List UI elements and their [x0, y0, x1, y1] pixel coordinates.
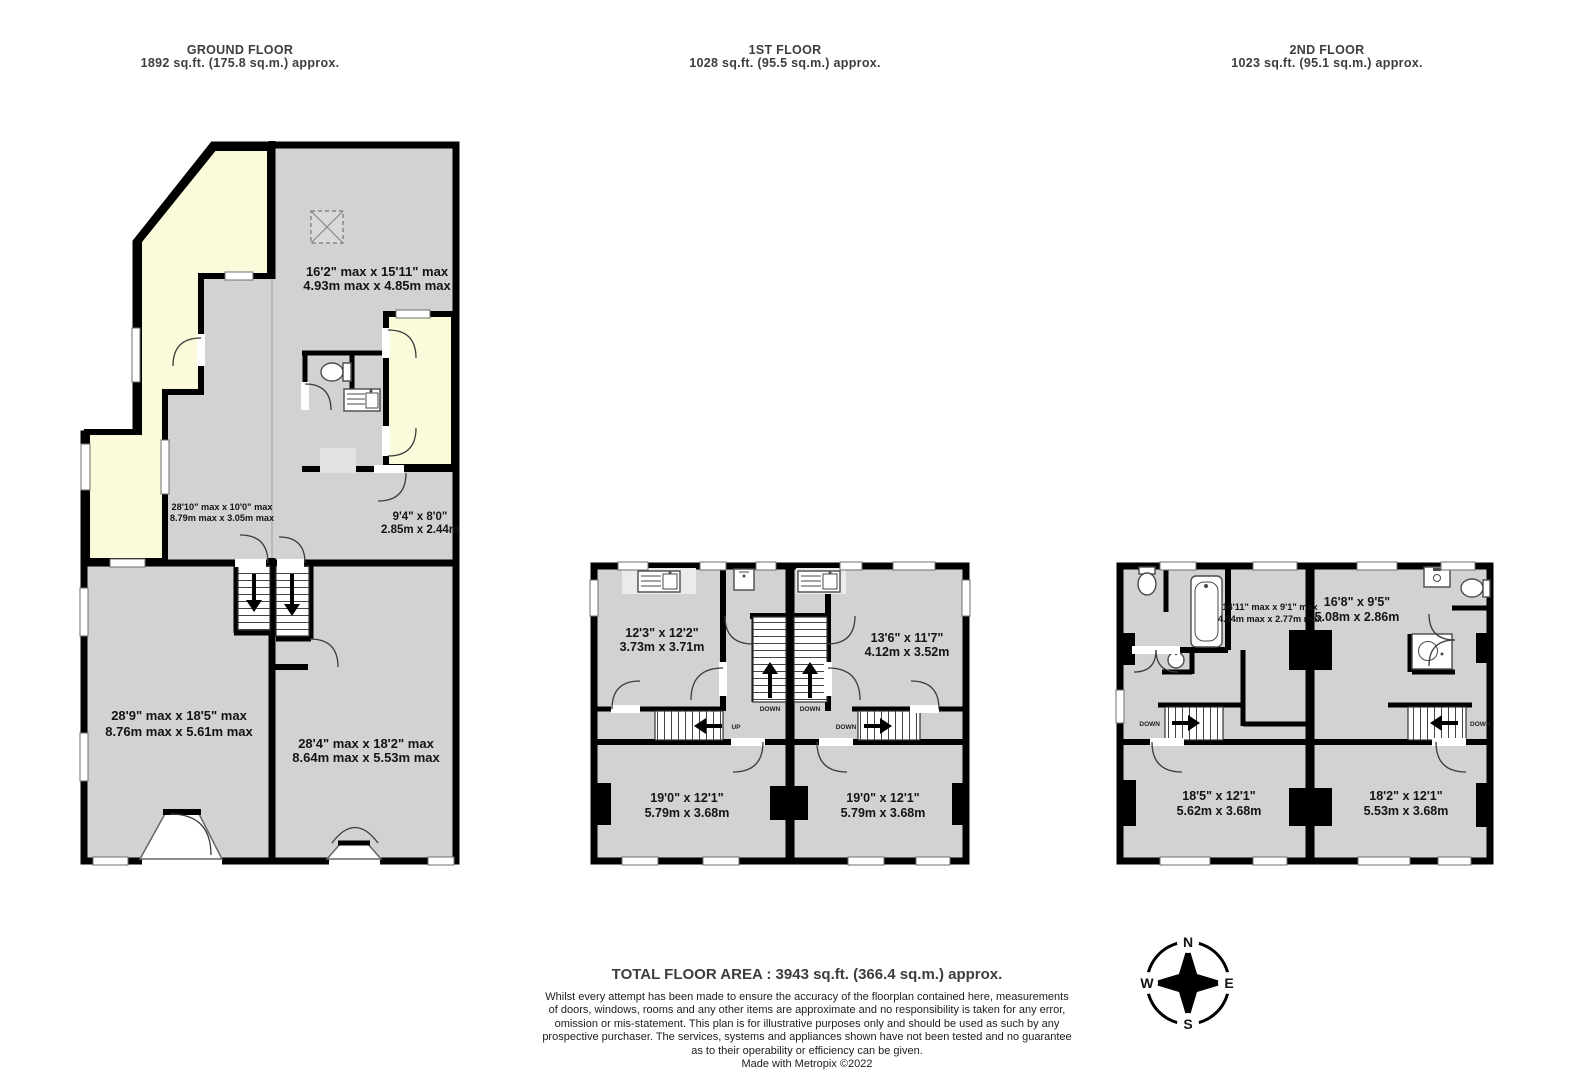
ff-kitchen-unit-right-icon [796, 568, 846, 594]
gf-sink-unit-icon [344, 389, 380, 411]
gf-outdoor-right [386, 314, 454, 467]
footer: TOTAL FLOOR AREA : 3943 sq.ft. (366.4 sq… [293, 966, 1321, 1071]
credit-line: Made with Metropix ©2022 [293, 1058, 1321, 1071]
room-label-imperial: 12'3" x 12'2" [625, 626, 698, 640]
ff-basin-icon [734, 569, 754, 590]
ground-floor-plan: 16'2" max x 15'11" max 4.93m max x 4.85m… [80, 141, 459, 866]
floorplan-drawing: 16'2" max x 15'11" max 4.93m max x 4.85m… [0, 0, 1587, 1080]
room-label-metric: 5.08m x 2.86m [1315, 610, 1400, 624]
skylight-icon [311, 211, 343, 243]
room-label-imperial: 16'2" max x 15'11" max [306, 264, 449, 279]
first-floor-plan: 12'3" x 12'2" 3.73m x 3.71m 13'6" x 11'7… [590, 562, 970, 865]
room-label-metric: 8.76m max x 5.61m max [105, 724, 253, 739]
floorplan-page: GROUND FLOOR 1892 sq.ft. (175.8 sq.m.) a… [0, 0, 1587, 1080]
disclaimer-line: as to their operability or efficiency ca… [293, 1045, 1321, 1058]
room-label-imperial: 14'11" max x 9'1" max [1222, 602, 1318, 612]
room-label-imperial: 19'0" x 12'1" [650, 791, 723, 805]
room-label-imperial: 28'4" max x 18'2" max [298, 736, 434, 751]
stair-label: DOWN [760, 706, 781, 713]
stair-label: DOWN [836, 724, 857, 731]
room-label-imperial: 18'5" x 12'1" [1182, 789, 1255, 803]
room-label-metric: 4.93m max x 4.85m max [303, 278, 451, 293]
room-label-imperial: 16'8" x 9'5" [1324, 595, 1391, 609]
disclaimer-line: prospective purchaser. The services, sys… [293, 1031, 1321, 1044]
room-label-metric: 8.64m max x 5.53m max [292, 750, 440, 765]
room-label-imperial: 9'4" x 8'0" [393, 511, 448, 523]
room-label-metric: 5.62m x 3.68m [1177, 804, 1262, 818]
disclaimer-line: of doors, windows, rooms and any other i… [293, 1004, 1321, 1017]
stair-label: UP [731, 724, 741, 731]
sf-toilet-right-icon [1461, 579, 1490, 597]
second-floor-plan: 14'11" max x 9'1" max 4.54m max x 2.77m … [1116, 562, 1491, 865]
room-label-metric: 4.12m x 3.52m [865, 645, 950, 659]
disclaimer-line: Whilst every attempt has been made to en… [293, 991, 1321, 1004]
ff-kitchen-unit-left-icon [622, 568, 696, 594]
total-floor-area: TOTAL FLOOR AREA : 3943 sq.ft. (366.4 sq… [293, 966, 1321, 983]
room-label-metric: 5.53m x 3.68m [1364, 804, 1449, 818]
gf-toilet-icon [321, 363, 351, 381]
room-label-imperial: 19'0" x 12'1" [846, 791, 919, 805]
sf-basin-left-icon [1168, 652, 1184, 668]
room-label-imperial: 28'10" max x 10'0" max [172, 502, 274, 512]
room-label-metric: 2.85m x 2.44m [381, 524, 459, 536]
stair-label: DOWN [1139, 721, 1160, 728]
room-label-metric: 3.73m x 3.71m [620, 640, 705, 654]
room-label-imperial: 13'6" x 11'7" [871, 631, 944, 645]
room-label-imperial: 28'9" max x 18'5" max [111, 708, 247, 723]
room-label-metric: 5.79m x 3.68m [841, 806, 926, 820]
compass-north: N [1183, 934, 1193, 950]
room-label-metric: 4.54m max x 2.77m max [1218, 614, 1323, 624]
sf-toilet-left-icon [1138, 567, 1156, 595]
stair-label: DOWN [1470, 721, 1491, 728]
gf-rug [320, 448, 356, 473]
sf-bathtub-icon [1191, 576, 1222, 647]
room-label-metric: 8.79m max x 3.05m max [170, 513, 275, 523]
disclaimer-line: omission or mis-statement. This plan is … [293, 1018, 1321, 1031]
room-label-metric: 5.79m x 3.68m [645, 806, 730, 820]
stair-label: DOWN [800, 706, 821, 713]
room-label-imperial: 18'2" x 12'1" [1369, 789, 1442, 803]
